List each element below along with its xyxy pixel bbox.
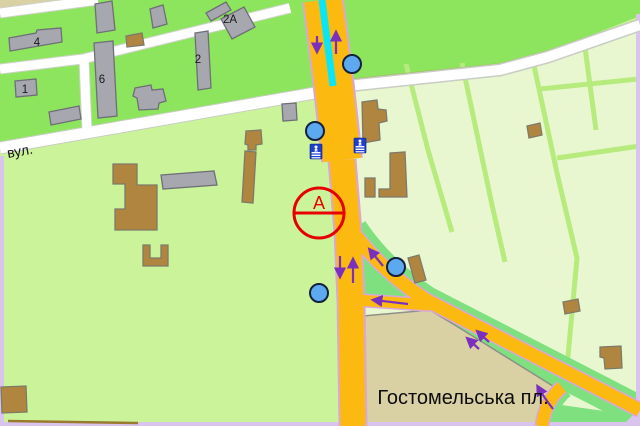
building bbox=[563, 299, 580, 314]
building bbox=[1, 386, 27, 413]
building-number-label: 2A bbox=[223, 14, 237, 26]
bus-stop-marker[interactable] bbox=[387, 258, 405, 276]
map-edge-right bbox=[636, 14, 640, 426]
bus-stop-marker[interactable] bbox=[310, 284, 328, 302]
building-number-label: 2 bbox=[195, 54, 201, 66]
pedestrian-crossing-icon[interactable] bbox=[354, 138, 366, 153]
building-number-label: 6 bbox=[99, 74, 105, 86]
route-marker-a-label: A bbox=[313, 193, 325, 213]
bus-stop-marker[interactable] bbox=[306, 122, 324, 140]
bus-stop-marker[interactable] bbox=[343, 55, 361, 73]
square-name-label: Гостомельська пл. bbox=[377, 387, 548, 409]
map-edge-left bbox=[0, 156, 4, 426]
building bbox=[242, 151, 256, 203]
building bbox=[282, 103, 297, 121]
building-6 bbox=[94, 41, 117, 118]
building bbox=[527, 123, 542, 138]
building-number-label: 4 bbox=[34, 37, 41, 49]
loop-road bbox=[84, 60, 87, 131]
building bbox=[365, 178, 375, 197]
main-road bbox=[342, 160, 353, 426]
building bbox=[126, 33, 144, 47]
building bbox=[95, 1, 115, 33]
map-canvas[interactable]: A вул. Гостомельська пл. 4 1 6 2 2A bbox=[0, 0, 640, 426]
pedestrian-crossing-icon[interactable] bbox=[310, 144, 322, 159]
building-number-label: 1 bbox=[22, 84, 28, 96]
